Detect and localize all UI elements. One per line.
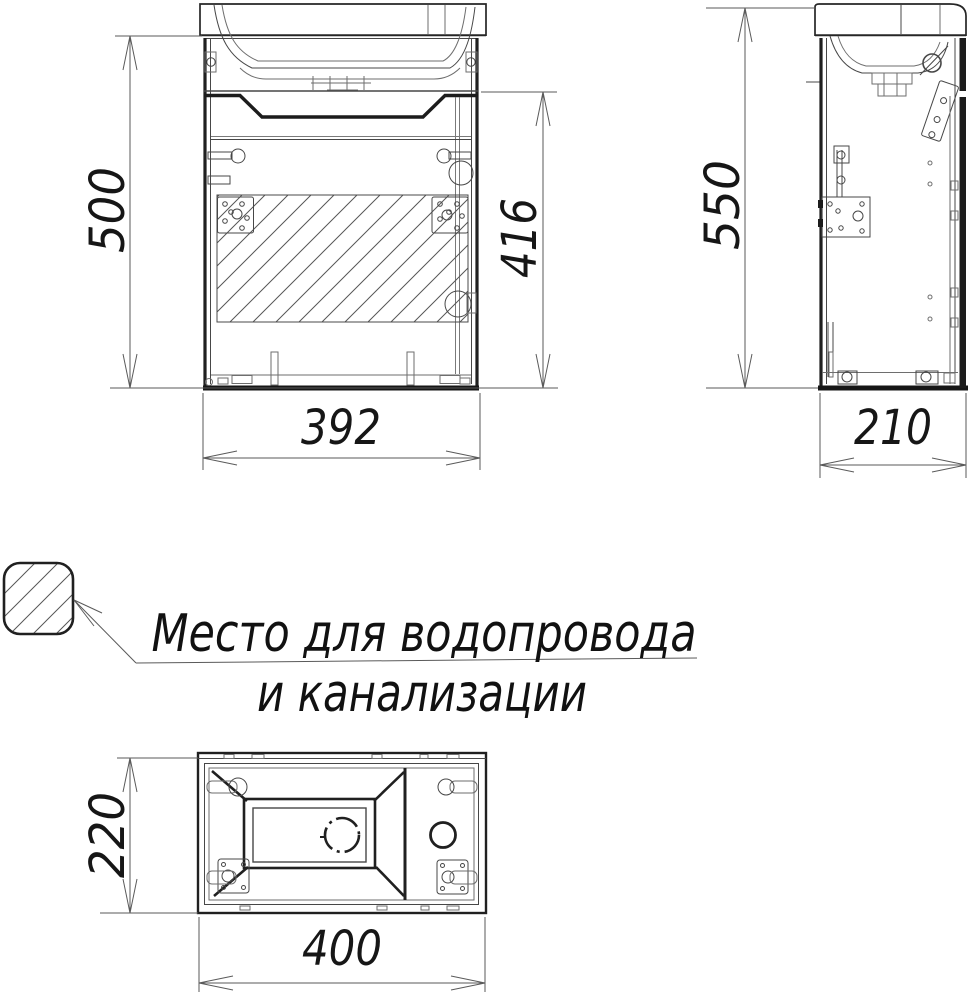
legend-text-line2: и канализации — [257, 664, 587, 724]
top-drain-hole — [325, 818, 359, 852]
top-bracket-right — [437, 860, 477, 894]
top-hinge-details — [207, 778, 477, 796]
dim-front-width-label: 392 — [301, 400, 381, 456]
side-sink-bowl-profile — [830, 36, 948, 96]
front-handle-recess — [204, 91, 478, 117]
top-dimension-lines — [100, 758, 485, 992]
front-sink-bowl-outline — [214, 5, 475, 90]
top-view — [198, 753, 486, 913]
side-bottom-details — [822, 322, 958, 384]
dim-front-height-label: 500 — [80, 167, 136, 253]
side-tilted-bracket — [921, 80, 959, 141]
front-view — [200, 4, 486, 388]
side-faucet-detail — [920, 46, 948, 75]
front-plumbing-hatch-area — [217, 195, 468, 322]
hatched-square-symbol — [4, 563, 73, 634]
dim-side-height-label: 550 — [695, 160, 751, 250]
front-sink-top — [200, 4, 486, 39]
side-mounting-plate — [818, 146, 870, 237]
dim-front-inner-height-label: 416 — [492, 198, 548, 278]
top-faucet-hole — [431, 823, 456, 848]
top-edge-clips — [224, 755, 459, 911]
vanity-cabinet-drawing: 500 416 392 — [0, 0, 973, 1000]
side-carcass — [806, 38, 968, 388]
top-carcass — [198, 753, 486, 913]
dim-side-depth-label: 210 — [854, 400, 932, 456]
technical-drawing-page: 500 416 392 — [0, 0, 973, 1000]
legend-text-line1: Место для водопровода — [152, 604, 697, 664]
dim-top-width-label: 400 — [302, 921, 382, 977]
dim-top-depth-label: 220 — [80, 792, 136, 878]
front-bottom-details — [206, 352, 472, 386]
side-view — [806, 4, 968, 388]
side-sink-top — [815, 4, 966, 36]
side-screw-holes — [928, 161, 932, 321]
